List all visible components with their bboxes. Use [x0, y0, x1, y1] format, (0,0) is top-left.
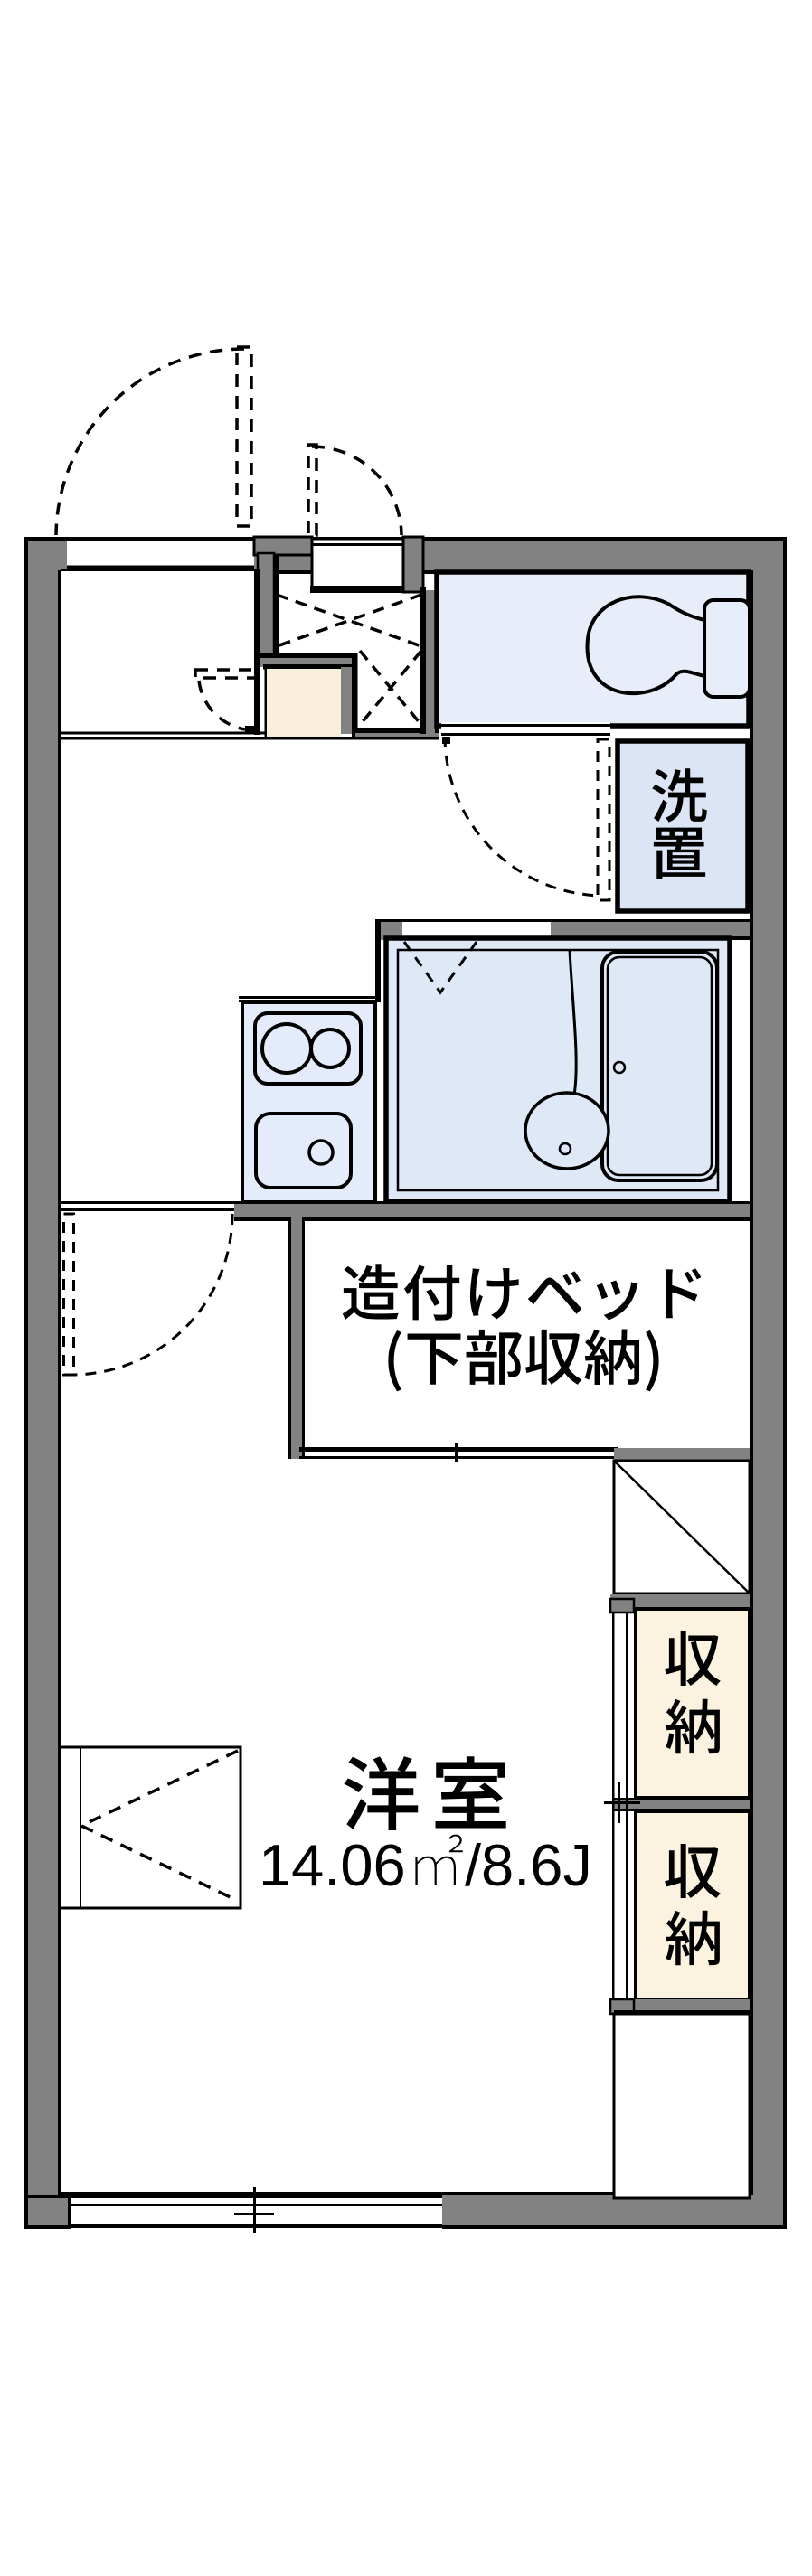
svg-text:/8.6J: /8.6J: [465, 1832, 592, 1898]
svg-text:14.06: 14.06: [259, 1832, 406, 1898]
